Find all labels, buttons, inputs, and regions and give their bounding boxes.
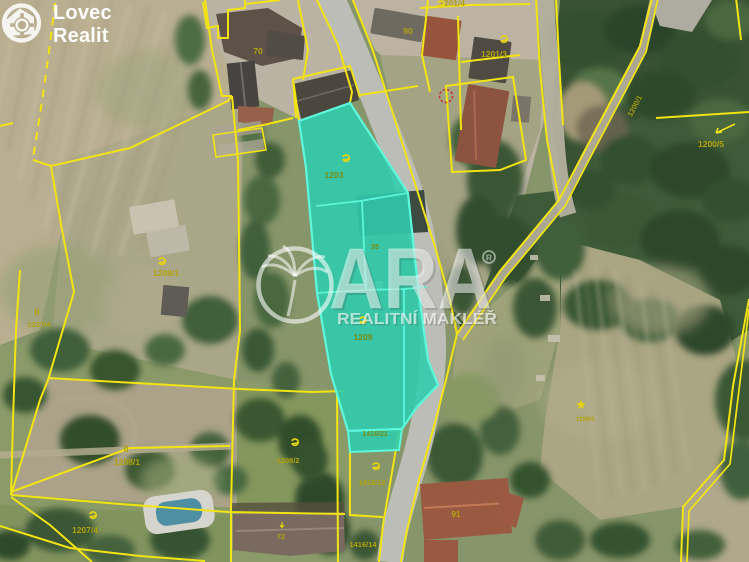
svg-text:1207/4: 1207/4 [72,525,98,535]
svg-text:1209/1: 1209/1 [153,268,179,278]
svg-text:1200/5: 1200/5 [698,139,724,149]
svg-text:90: 90 [403,26,413,36]
svg-text:72: 72 [277,532,285,541]
svg-text:70: 70 [253,46,263,56]
svg-text:1227/4: 1227/4 [28,320,52,329]
svg-text:Lovec: Lovec [53,2,112,24]
svg-text:REALITNÍ MAKLÉŘ: REALITNÍ MAKLÉŘ [337,310,497,328]
svg-text:1209/3: 1209/3 [576,417,595,423]
svg-text:1416/14: 1416/14 [349,540,377,549]
svg-text:1203: 1203 [325,170,344,180]
svg-text:1416/12: 1416/12 [358,478,385,487]
svg-text:1208/2: 1208/2 [277,456,300,465]
svg-text:1209: 1209 [354,332,373,342]
svg-text:1208/1: 1208/1 [114,457,140,467]
svg-text:II: II [34,307,39,317]
svg-text:91: 91 [452,510,461,519]
svg-text:1416/21: 1416/21 [362,431,387,438]
svg-text:R: R [486,253,492,263]
svg-text:Realit: Realit [53,25,109,47]
svg-text:II: II [123,444,128,454]
svg-text:1201/3: 1201/3 [481,49,507,59]
